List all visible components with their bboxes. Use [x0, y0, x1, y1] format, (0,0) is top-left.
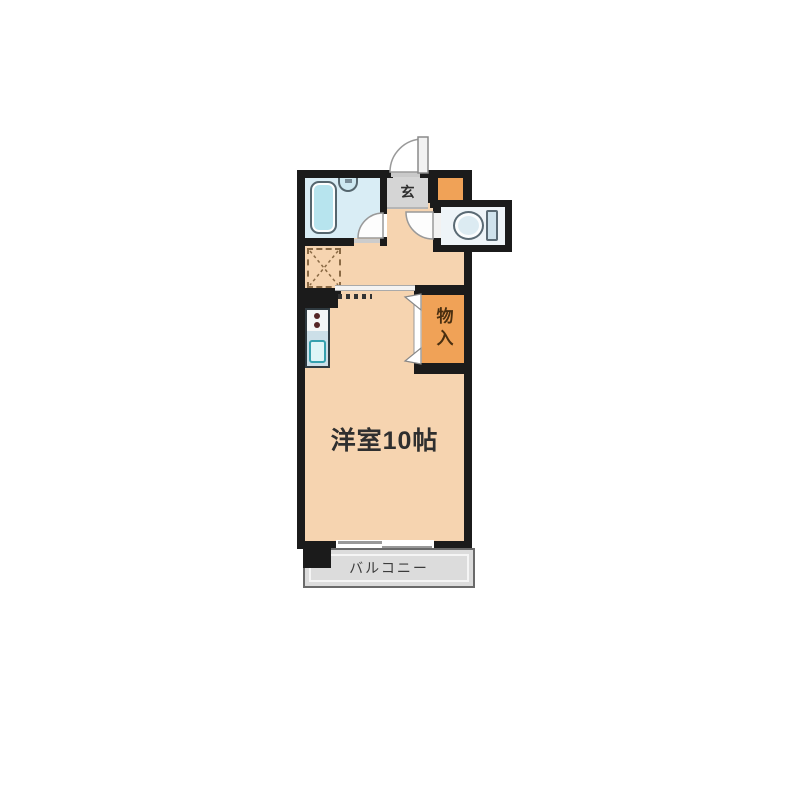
wall-bathroom-bottom [297, 238, 354, 246]
toilet-icon [453, 211, 484, 240]
stove-burner-icon [314, 313, 320, 319]
wall-kitchen-corner [305, 296, 338, 308]
hatch-x-icon [309, 250, 339, 286]
entrance-door-leaf-icon [418, 137, 428, 173]
closet-label: 物入 [431, 307, 456, 351]
balcony-inner-rail: バルコニー [309, 554, 469, 582]
wall-entrance-right [428, 176, 438, 203]
stove-burner-icon [314, 322, 320, 328]
opening-lintel-line [335, 285, 415, 291]
entrance-label: 玄 [401, 182, 415, 202]
wall-balcony-corner [303, 545, 331, 568]
half-wall-hatch [338, 294, 372, 299]
entrance-area: 玄 [387, 176, 428, 209]
wall-toilet-left-lower [433, 238, 441, 245]
wall-left [297, 170, 305, 549]
toilet-tank-icon [486, 210, 498, 241]
bathroom-threshold [354, 239, 380, 243]
bathroom-door-gap [380, 214, 387, 237]
window-pane-line [338, 541, 382, 544]
closet-room: 物入 [422, 295, 464, 363]
kitchen-sink-icon [309, 340, 326, 363]
entrance-door-swing-icon [390, 139, 423, 172]
floorplan-canvas: 玄 物入 [0, 0, 800, 800]
wall-bathroom-right-lower [380, 237, 387, 246]
toilet-door-gap [433, 213, 441, 238]
wall-right-main [464, 245, 472, 549]
appliance-space-box [307, 248, 341, 288]
balcony-label: バルコニー [349, 558, 429, 578]
pipe-space-block [438, 178, 463, 201]
entrance-threshold [391, 170, 420, 177]
wall-top-left [297, 170, 393, 178]
wall-toilet-bottom [433, 245, 512, 252]
faucet-icon [345, 179, 352, 183]
wall-bathroom-right-upper [380, 176, 387, 214]
bathtub-icon [310, 181, 337, 234]
main-room-label: 洋室10帖 [303, 421, 466, 457]
wall-toilet-top [433, 200, 512, 207]
